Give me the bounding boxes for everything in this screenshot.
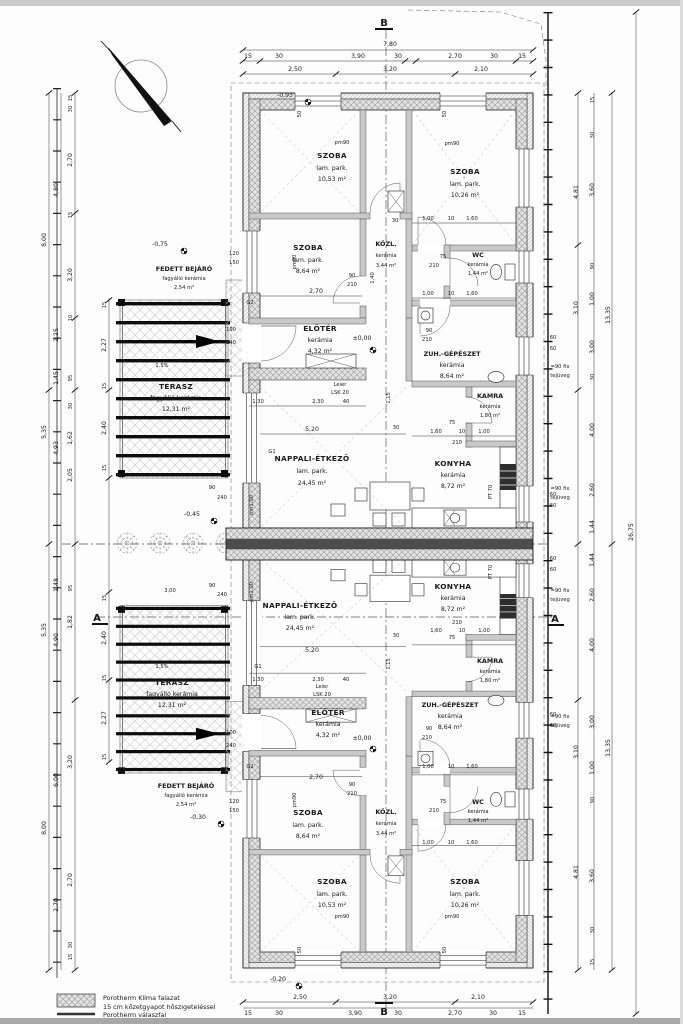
dim: 1,15 [386, 658, 392, 670]
dim: 15 [518, 53, 526, 60]
room-name: KAMRA [477, 392, 503, 400]
dim: 3,60 [589, 183, 596, 197]
note: LSK 20 [313, 692, 331, 698]
dim: 1,60 [430, 429, 442, 435]
dim: 95 [68, 585, 74, 592]
section-marker-a: A [93, 613, 101, 624]
room-floor: lam. park. [449, 891, 480, 898]
dim: 100 [226, 327, 236, 333]
floorplan-page: SZOBAlam. park.10,53 m² SZOBAlam. park.1… [0, 0, 683, 1024]
dim: 4,90 [53, 633, 60, 647]
dim: 50 [442, 947, 448, 954]
room-name: FEDETT BEJÁRÓ [158, 781, 215, 790]
dim: 10 [448, 764, 455, 770]
dim: 8,00 [41, 821, 48, 835]
page-edge-bottom [0, 1018, 683, 1024]
room-floor: kerámia [439, 361, 464, 369]
dim: 1,30 [252, 677, 264, 683]
note: 1,5% [155, 363, 168, 369]
dim: 150 [229, 260, 239, 266]
dim: 3,90 [351, 53, 365, 60]
dim: 30 [68, 106, 74, 113]
dim: 2,50 [288, 66, 302, 73]
legend-wall-line2: 15 cm kőzetgyapot hőszigeteléssel [103, 1002, 216, 1011]
room-floor: kerámia [437, 712, 462, 720]
dim: 210 [429, 263, 439, 269]
dim: 1,82 [67, 615, 74, 629]
room-name: WC [472, 798, 484, 806]
dim: 2,70 [448, 1010, 462, 1017]
dim: 1,00 [478, 429, 490, 435]
beam-tag: G1 [268, 449, 275, 455]
dim: 30 [393, 633, 400, 639]
legend-wall-line1: Porotherm Klíma falazat [103, 994, 180, 1002]
dim: 90 [349, 273, 356, 279]
room-area: 1,80 m² [480, 413, 500, 419]
note: PT 70 [488, 565, 494, 580]
level-label: -0,20 [270, 976, 286, 983]
beam-tag: G2 [246, 764, 253, 770]
dim: 2,70 [309, 774, 323, 781]
dim: 5,35 [41, 425, 48, 439]
room-name: SZOBA [317, 877, 347, 886]
dim: 15 [102, 754, 108, 761]
note: PT 70 [488, 485, 494, 500]
dim: 50 [297, 111, 303, 118]
dim: 5,20 [305, 426, 319, 433]
room-name: SZOBA [317, 151, 347, 160]
dim: 10 [448, 291, 455, 297]
room-szoba3-lower: SZOBAlam. park.8,64 m² [292, 808, 323, 840]
level-label: -0,30 [190, 814, 206, 821]
dim: 1,60 [466, 840, 478, 846]
room-floor: kerámia [376, 820, 397, 827]
dim: 1,00 [478, 628, 490, 634]
room-kozl-upper: KÖZL.kerámia3,44 m² [375, 239, 396, 269]
door-tag: pm1,00 [249, 495, 255, 515]
dim: 30 [275, 53, 283, 60]
room-area: 4,32 m² [316, 732, 341, 739]
dim: 240 [217, 592, 227, 598]
dim: 2,60 [589, 588, 596, 602]
room-name: ELŐTÉR [303, 324, 337, 333]
door-tag: pm90 [292, 793, 298, 808]
dim: 26,75 [628, 523, 635, 541]
dim: 210 [429, 808, 439, 814]
dim: 1,62 [67, 431, 74, 445]
dim: 100 [226, 730, 236, 736]
dim: 1,00 [589, 292, 596, 306]
room-area: 1,44 m² [468, 271, 488, 277]
dim: 240 [226, 743, 236, 749]
room-floor: kerámia [315, 720, 340, 728]
dim: 75 [449, 635, 456, 641]
note: 1,5% [155, 664, 168, 670]
party-wall [226, 528, 533, 560]
room-floor: lam. park. [284, 614, 315, 621]
dim: 2,70 [309, 288, 323, 295]
note: tejüveg [550, 373, 570, 379]
room-floor: lam. park. [292, 822, 323, 829]
dim: 3,20 [67, 268, 74, 282]
dim: 2,27 [101, 711, 108, 725]
dim: 1,48 [53, 578, 60, 592]
room-area: 8,64 m² [296, 268, 321, 275]
dim: 15 [102, 383, 108, 390]
room-kozl-lower: KÖZL.kerámia3,44 m² [375, 807, 396, 837]
door-tag: pm90 [335, 914, 350, 920]
dim: 15 [518, 1010, 526, 1017]
note: =90 fix [551, 588, 570, 594]
dim: 15 [244, 53, 252, 60]
dim: 1,15 [386, 392, 392, 404]
room-name: SZOBA [450, 877, 480, 886]
level-label: ±0,00 [353, 335, 372, 342]
dim: 90 [426, 328, 433, 334]
beam-tag: G1 [254, 664, 261, 670]
dim: 5,35 [41, 623, 48, 637]
dim: 3,90 [348, 1010, 362, 1017]
room-floor: kerámia [468, 808, 489, 815]
room-szoba2-upper: SZOBAlam. park.10,26 m² [449, 167, 480, 199]
room-area: 8,64 m² [296, 833, 321, 840]
section-marker-a: A [551, 614, 559, 625]
dim: 2,10 [471, 994, 485, 1001]
room-floor: lam. park. [449, 181, 480, 188]
room-area: 10,53 m² [318, 902, 347, 909]
note: tejüveg [550, 495, 570, 501]
door-tag: pm90 [335, 140, 350, 146]
note: Leier [316, 684, 330, 690]
dim: 15 [68, 95, 74, 102]
dim: 10 [459, 429, 466, 435]
room-floor: kerámia [376, 252, 397, 259]
dim: 75 [440, 254, 447, 260]
room-area: 12,31 m² [158, 702, 187, 709]
dim: 75 [449, 420, 456, 426]
room-area: 10,26 m² [451, 192, 480, 199]
room-floor: fagyálló kerámia [150, 394, 202, 402]
dim: 4,93 [53, 441, 60, 455]
dim: 1,40 [370, 272, 376, 284]
section-marker-b: B [380, 18, 388, 29]
dim: 10 [448, 840, 455, 846]
dim: 15 [102, 595, 108, 602]
level-label: ±0,00 [353, 735, 372, 742]
room-area: 2,54 m² [176, 802, 196, 808]
room-kamra-upper: KAMRAkerámia1,80 m² [477, 392, 503, 419]
beam-tag: G2 [246, 300, 253, 306]
room-area: 24,45 m² [286, 625, 315, 632]
room-name: SZOBA [293, 243, 323, 252]
dim: 210 [422, 735, 432, 741]
dim: 30 [394, 1010, 402, 1017]
dim: 30 [489, 1010, 497, 1017]
door-tag: pm90 [445, 914, 460, 920]
room-name: SZOBA [293, 808, 323, 817]
dim: 2,50 [293, 994, 307, 1001]
room-name: KONYHA [435, 582, 472, 591]
note: Leier [334, 382, 348, 388]
room-name: NAPPALI-ÉTKEZŐ [274, 454, 349, 463]
dim: 1,00 [589, 761, 596, 775]
dim: 4,00 [589, 638, 596, 652]
dim: 240 [217, 495, 227, 501]
dim: 95 [68, 375, 74, 382]
dim: 210 [452, 620, 462, 626]
room-floor: fagyálló kerámia [146, 690, 198, 698]
dim: 2,70 [53, 898, 60, 912]
dim: 15 [102, 465, 108, 472]
door-tag: pm1,00 [249, 582, 255, 602]
dim: 30 [392, 218, 399, 224]
dim: 1,44 [589, 520, 596, 534]
dim: 60 [550, 335, 557, 341]
dim: 2,10 [474, 66, 488, 73]
note: tejüveg [550, 723, 570, 729]
dim: 90 [349, 782, 356, 788]
dim: 40 [343, 399, 350, 405]
dim: 1,60 [466, 291, 478, 297]
dim: 2,70 [67, 873, 74, 887]
room-area: 24,45 m² [298, 480, 327, 487]
dim: 210 [452, 440, 462, 446]
room-floor: lam. park. [316, 165, 347, 172]
dim: 3,10 [573, 301, 580, 315]
dim: 2,60 [589, 483, 596, 497]
dim: 2,30 [312, 399, 324, 405]
dim: 1,44 [589, 553, 596, 567]
room-floor: fagyálló kerámia [162, 275, 205, 282]
door-tag: pm90 [292, 255, 298, 270]
dim: 3,60 [589, 869, 596, 883]
dim: 6,00 [53, 773, 60, 787]
room-area: 12,31 m² [162, 406, 191, 413]
room-name: ZUH.-GÉPÉSZET [424, 349, 482, 358]
dim: 1,60 [430, 628, 442, 634]
room-name: TERASZ [155, 678, 189, 687]
dim: 75 [440, 799, 447, 805]
dim: 8,00 [41, 233, 48, 247]
room-floor: fagyálló kerámia [164, 792, 207, 799]
dim: 3,00 [164, 588, 176, 594]
dim: 15 [102, 302, 108, 309]
dim: 15 [102, 675, 108, 682]
dim: 240 [226, 340, 236, 346]
room-name: KÖZL. [375, 807, 396, 816]
note: =90 fix [551, 364, 570, 370]
page-edge-top [0, 0, 683, 6]
dim: 15 [244, 1010, 252, 1017]
dim: 2,25 [53, 328, 60, 342]
dim: 30 [590, 927, 596, 934]
dim: 60 [550, 567, 557, 573]
dim: 60 [550, 346, 557, 352]
dim: 30 [490, 53, 498, 60]
dim: 40 [343, 677, 350, 683]
dim: 2,05 [67, 468, 74, 482]
note: LSK 20 [331, 390, 349, 396]
room-name: KONYHA [435, 459, 472, 468]
dim: 2,30 [312, 677, 324, 683]
dim: 3,00 [589, 715, 596, 729]
dim: 2,70 [67, 153, 74, 167]
room-area: 8,72 m² [441, 483, 466, 490]
dim: 1,30 [252, 399, 264, 405]
dim: 50 [297, 947, 303, 954]
room-floor: kerámia [307, 336, 332, 344]
dim: 30 [275, 1010, 283, 1017]
room-area: 10,53 m² [318, 176, 347, 183]
dim: 30 [394, 53, 402, 60]
dim: 15 [68, 954, 74, 961]
dim: 1,45 [53, 371, 60, 385]
room-area: 3,44 m² [376, 263, 396, 269]
room-name: KAMRA [477, 657, 503, 665]
room-floor: kerámia [440, 471, 465, 479]
room-szoba1-upper: SZOBAlam. park.10,53 m² [316, 151, 347, 183]
room-name: NAPPALI-ÉTKEZŐ [262, 601, 337, 610]
dim: 1,60 [466, 216, 478, 222]
room-floor: kerámia [468, 261, 489, 268]
dim: 15 [68, 212, 74, 219]
dim: 30 [393, 425, 400, 431]
note: tejüveg [550, 597, 570, 603]
dim: 1,00 [422, 216, 434, 222]
room-kamra-lower: KAMRAkerámia1,80 m² [477, 657, 503, 684]
room-floor: kerámia [480, 403, 501, 410]
dim: 15 [590, 959, 596, 966]
floor-plan-drawing: SZOBAlam. park.10,53 m² SZOBAlam. park.1… [0, 0, 683, 1024]
dim: 2,40 [101, 421, 108, 435]
level-label: -0,45 [184, 511, 200, 518]
room-area: 1,44 m² [468, 818, 488, 824]
room-area: 8,72 m² [441, 606, 466, 613]
room-name: KÖZL. [375, 239, 396, 248]
dim: 90 [209, 583, 216, 589]
dim: 30 [68, 942, 74, 949]
room-area: 10,26 m² [451, 902, 480, 909]
dim: 13,35 [605, 306, 612, 324]
dim: 1,00 [422, 840, 434, 846]
dim: 10 [68, 315, 74, 322]
dim: 30 [68, 403, 74, 410]
room-floor: lam. park. [296, 468, 327, 475]
note: =90 fix [551, 486, 570, 492]
dim: 150 [229, 808, 239, 814]
dim: 4,81 [573, 185, 580, 199]
door-tag: pm90 [445, 141, 460, 147]
dim: 120 [229, 251, 239, 257]
dim: 1,60 [466, 764, 478, 770]
level-label: -0,93 [277, 92, 293, 99]
dim: 4,00 [589, 423, 596, 437]
dim: 3,20 [383, 994, 397, 1001]
room-area: 2,54 m² [174, 285, 194, 291]
room-eloter-lower: ELŐTÉRkerámia4,32 m² [311, 708, 345, 739]
dim: 3,00 [589, 340, 596, 354]
room-area: 4,32 m² [308, 348, 333, 355]
dim: 10 [448, 216, 455, 222]
dim: 90 [590, 263, 596, 270]
room-area: 1,80 m² [480, 678, 500, 684]
dim: 3,20 [67, 755, 74, 769]
room-szoba1-lower: SZOBAlam. park.10,53 m² [316, 877, 347, 909]
dim: 60 [550, 556, 557, 562]
note: =90 fix [551, 714, 570, 720]
dim: 210 [347, 282, 357, 288]
room-name: FEDETT BEJÁRÓ [156, 264, 213, 273]
dim: 210 [347, 791, 357, 797]
dim: 4,80 [53, 183, 60, 197]
room-area: 8,64 m² [438, 724, 463, 731]
dim: 60 [550, 503, 557, 509]
dim: 13,35 [605, 739, 612, 757]
dim: 7,80 [383, 41, 397, 48]
room-name: WC [472, 251, 484, 259]
room-name: ELŐTÉR [311, 708, 345, 717]
room-floor: lam. park. [316, 891, 347, 898]
dim: 2,70 [448, 53, 462, 60]
room-eloter-upper: ELŐTÉRkerámia4,32 m² [303, 324, 337, 355]
dim: 4,81 [573, 865, 580, 879]
dim: 30 [590, 132, 596, 139]
level-label: -0,75 [152, 241, 168, 248]
dim: 210 [422, 337, 432, 343]
dim: 15 [590, 97, 596, 104]
room-name: ZUH.-GÉPÉSZET [422, 700, 480, 709]
room-area: 3,44 m² [376, 831, 396, 837]
room-floor: kerámia [480, 668, 501, 675]
room-floor: kerámia [440, 594, 465, 602]
dim: 2,40 [101, 631, 108, 645]
dim: 3,20 [383, 66, 397, 73]
dim: 1,00 [422, 291, 434, 297]
section-marker-b: B [380, 1007, 388, 1018]
dim: 90 [209, 485, 216, 491]
room-name: TERASZ [159, 382, 193, 391]
legend-wall-swatch [57, 994, 95, 1007]
legend-partition-line: Porotherm válaszfal [103, 1011, 166, 1019]
room-szoba2-lower: SZOBAlam. park.10,26 m² [449, 877, 480, 909]
dim: 1,00 [422, 764, 434, 770]
dim: 2,27 [101, 338, 108, 352]
dim: 30 [590, 374, 596, 381]
dim: 10 [459, 628, 466, 634]
dim: 5,20 [305, 647, 319, 654]
dim: 3,10 [573, 745, 580, 759]
dim: 90 [426, 726, 433, 732]
dim: 50 [442, 111, 448, 118]
room-area: 8,64 m² [440, 373, 465, 380]
dim: 120 [229, 799, 239, 805]
dim: 90 [590, 797, 596, 804]
room-name: SZOBA [450, 167, 480, 176]
